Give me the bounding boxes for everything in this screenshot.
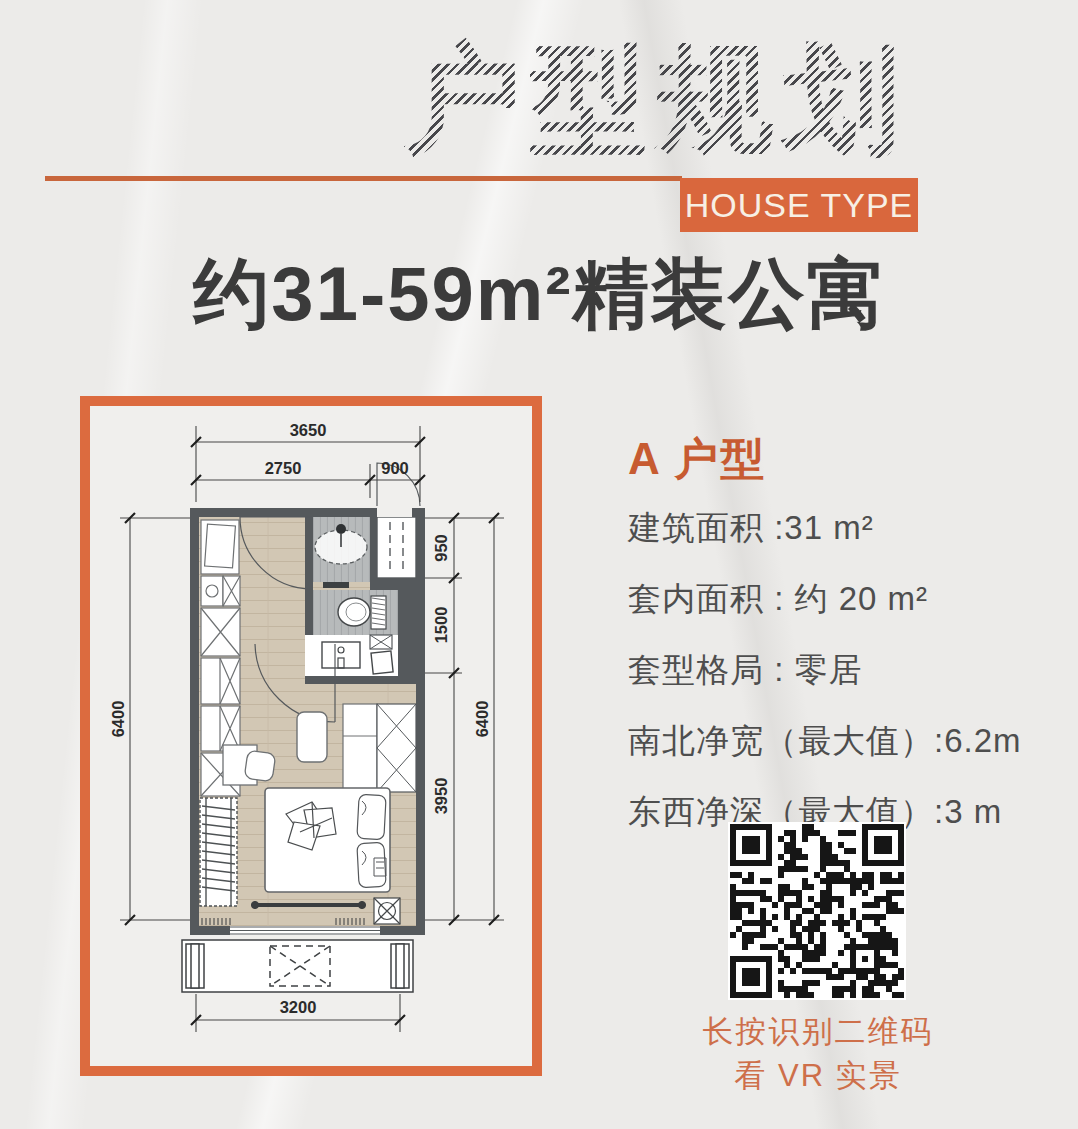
qr-code[interactable] bbox=[728, 822, 906, 1000]
house-type-label: HOUSE TYPE bbox=[685, 186, 914, 225]
balcony bbox=[182, 940, 413, 992]
page-title: 户型规划 bbox=[404, 32, 908, 168]
toilet bbox=[338, 596, 386, 629]
unit-details: 建筑面积 :31 m² 套内面积 : 约 20 m² 套型格局 : 零居 南北净… bbox=[628, 492, 1022, 847]
dim-top-total: 3650 bbox=[290, 421, 327, 439]
ladder-rack bbox=[200, 798, 237, 906]
house-type-badge: HOUSE TYPE bbox=[680, 178, 918, 232]
detail-row-built-area: 建筑面积 :31 m² bbox=[628, 492, 1022, 563]
dim-left-total: 6400 bbox=[109, 701, 127, 738]
bed bbox=[265, 788, 390, 892]
detail-row-ns-width: 南北净宽（最大值）:6.2m bbox=[628, 705, 1022, 776]
qr-caption-line1: 长按识别二维码 bbox=[668, 1010, 968, 1054]
qr-caption-line2: 看 VR 实景 bbox=[668, 1054, 968, 1098]
dim-top-right: 900 bbox=[381, 459, 409, 477]
dim-right-seg1: 950 bbox=[432, 534, 450, 562]
accent-rule bbox=[45, 176, 682, 181]
dim-right-seg3: 3950 bbox=[432, 778, 450, 815]
detail-row-layout: 套型格局 : 零居 bbox=[628, 634, 1022, 705]
dim-right-seg2: 1500 bbox=[432, 607, 450, 644]
poster: 户型规划 HOUSE TYPE 约31-59m²精装公寓 bbox=[0, 0, 1078, 1129]
shower-threshold bbox=[323, 582, 349, 588]
tagline: 约31-59m²精装公寓 bbox=[0, 244, 1078, 347]
qr-caption: 长按识别二维码 看 VR 实景 bbox=[668, 1010, 968, 1098]
dim-top-left: 2750 bbox=[265, 459, 302, 477]
bottom-window bbox=[230, 926, 380, 935]
vanity bbox=[305, 635, 398, 676]
floorplan-frame: 3650 2750 900 6400 950 1500 3950 6400 32… bbox=[80, 396, 542, 1076]
coffee-table bbox=[297, 712, 327, 762]
unit-heading: A 户型 bbox=[628, 430, 766, 489]
entrance-opening bbox=[377, 508, 412, 517]
floorplan-svg: 3650 2750 900 6400 950 1500 3950 6400 32… bbox=[90, 406, 532, 1066]
floor-drain bbox=[374, 898, 400, 924]
dim-right-total: 6400 bbox=[473, 701, 491, 738]
qr-code-container bbox=[728, 822, 906, 1000]
dim-bottom: 3200 bbox=[280, 998, 317, 1016]
detail-row-inner-area: 套内面积 : 约 20 m² bbox=[628, 563, 1022, 634]
entry-cabinet bbox=[377, 517, 416, 578]
right-cabinet bbox=[343, 704, 416, 792]
